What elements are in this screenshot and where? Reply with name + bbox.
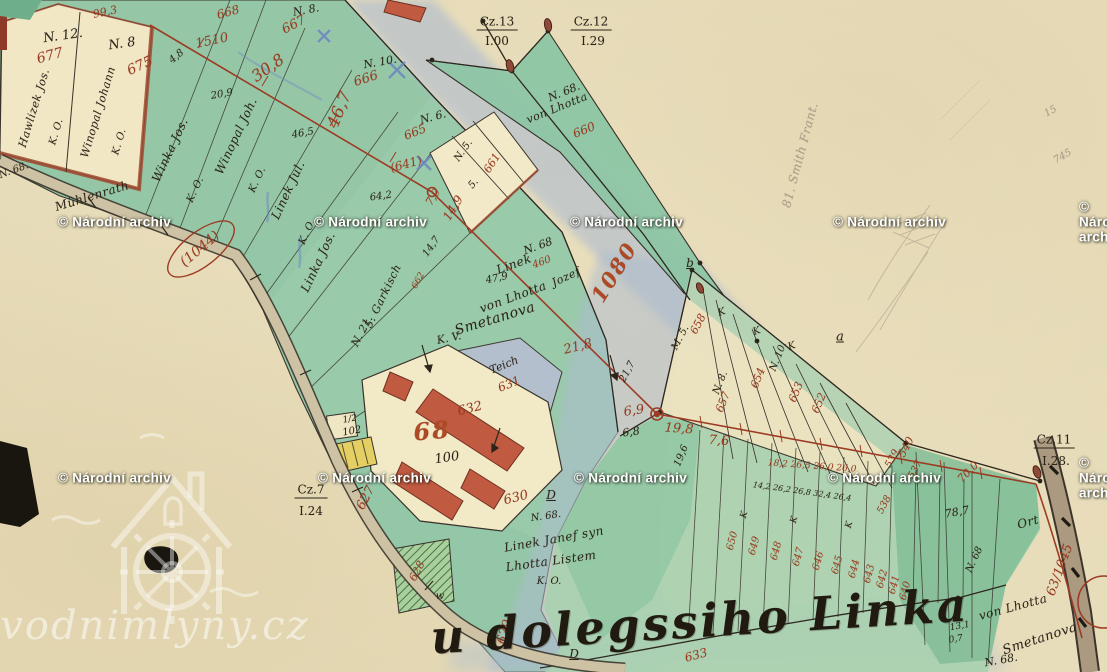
road-name: Mühlenrath (53, 179, 130, 213)
parcel-number-658: 658 (688, 312, 708, 336)
fixed-point-cz13-den: I.00 (485, 35, 509, 47)
parcel-number-627: 627 (354, 484, 377, 512)
road-plot-number: N. 68. (0, 161, 30, 181)
owner-name: Linek Jul. (269, 159, 306, 221)
road-parcel-number-1044: (1044) (178, 229, 223, 270)
parcel-number-648: 648 (770, 540, 785, 561)
plot-number: N. 8 (108, 36, 137, 53)
owner-note: K. O. (111, 128, 128, 157)
archive-watermark: © Národní archiv (828, 471, 941, 486)
pencil-note: 745 (1052, 148, 1074, 166)
archive-watermark: © Národní archiv (314, 215, 427, 230)
owner-note: K. O. (186, 176, 207, 205)
parcel-number-654: 654 (749, 366, 767, 390)
parcel-number-641: (641) (389, 154, 423, 174)
measure: 6,9 (623, 403, 645, 419)
measure: 14,7 (422, 235, 443, 259)
parcel-number-662: 662 (411, 271, 427, 290)
parcel-number-649: 649 (748, 535, 763, 556)
archive-watermark: © Národní archiv (570, 215, 683, 230)
measure: 1510 (194, 31, 229, 51)
parcel-number-539: 539 (884, 448, 902, 470)
house-number-102: 102 (342, 425, 363, 438)
owner-name: Winopal Joh. (213, 96, 259, 176)
archive-watermark: © Národní archiv (1079, 200, 1107, 245)
archive-watermark: © Národní archiv (318, 471, 431, 486)
mark-d: D (546, 489, 556, 501)
archive-watermark: © Národní archiv (833, 215, 946, 230)
measure: 46,5 (291, 127, 315, 141)
parcel-number-644: 644 (848, 558, 863, 579)
mark-k: K (752, 326, 762, 338)
mark-k: K (740, 511, 750, 520)
measure: 7,6 (708, 434, 730, 448)
measure: 21,7 (618, 360, 637, 384)
owner-name: Winopal Johann (79, 65, 117, 159)
parcel-number-650: 650 (726, 530, 741, 551)
parcel-number-661: 661 (482, 151, 502, 175)
parcel-number-633: 633 (683, 646, 708, 664)
vodnimlyny-watermark: vodnimlyny.cz (0, 603, 309, 649)
fixed-point-cz7: Cz.7 (295, 484, 328, 499)
parcel-number-628: 628 (407, 559, 427, 583)
parcel-number-645: 645 (831, 554, 846, 575)
measure: 14,9 (441, 193, 465, 222)
parcel-number-653: 653 (787, 380, 805, 404)
plot-number: N. 21. (349, 314, 374, 349)
mark-k: K (790, 516, 800, 525)
parcel-number-666: 666 (352, 69, 380, 89)
plot-number: N. 68. (984, 652, 1019, 669)
mark-k: K (845, 521, 855, 530)
measure: 30,8 (249, 51, 287, 85)
parcel-number-1080: 1080 (587, 238, 640, 305)
fixed-point-cz7-den: I.24 (299, 505, 323, 517)
parcel-number-668: 668 (215, 3, 240, 21)
parcel-number-667: 667 (280, 13, 308, 36)
parcel-number-677: 677 (35, 46, 64, 66)
plot-number: 5. (467, 177, 481, 191)
measure: 0,7 (948, 634, 964, 645)
owner-name: Winka Jos. (150, 116, 190, 184)
fixed-point-cz12-den: I.29 (581, 35, 605, 47)
plot-number: N. 5. (453, 138, 475, 163)
pencil-note: 81. Smith Frant. (780, 101, 820, 209)
owner-note: K. O. (537, 577, 562, 587)
plot-number: N. 10. (363, 54, 398, 71)
point-letter-a: a (836, 331, 844, 344)
parcel-number-647: 647 (792, 546, 807, 567)
house-number-100: 100 (434, 450, 460, 466)
parcel-number-652: 652 (810, 391, 828, 415)
parcel-number-646: 646 (812, 550, 827, 571)
parcel-number-1045: 63/1045 (1045, 542, 1076, 597)
measure: 21,8 (562, 337, 593, 357)
mark-k: K (787, 341, 797, 353)
pond-label: Teich (488, 354, 520, 375)
archive-watermark: © Národní archiv (58, 471, 171, 486)
owner-name: Hawlizek Jos. (17, 67, 51, 148)
fixed-point-cz12: Cz.12 (571, 16, 612, 31)
measure: 20,9 (210, 88, 234, 102)
fixed-point-cz11: Cz.11 (1034, 434, 1075, 449)
plot-number: N. 68. (530, 510, 561, 524)
owner-name: Jozef (550, 266, 582, 289)
owner-note: K. O. (48, 118, 65, 147)
parcel-number-630: 630 (502, 489, 529, 508)
parcel-number-538: 538 (876, 494, 894, 516)
fixed-point-cz13: Cz.13 (477, 16, 518, 31)
place-note: Ort (1016, 513, 1040, 530)
measure: 46,7 (325, 89, 355, 130)
archive-watermark: © Národní archiv (58, 215, 171, 230)
owner-note: K. V. (436, 330, 462, 346)
parcel-number-660: 660 (571, 120, 597, 140)
measure: 19,8 (664, 422, 694, 437)
mark-k: K (717, 307, 727, 319)
measure: 78,7 (944, 504, 970, 519)
plot-number: N. 12. (43, 27, 84, 45)
owner-note: K. O. (248, 166, 269, 195)
measure: 7,9 (424, 187, 443, 208)
measure: 19,6 (673, 444, 691, 468)
parcel-number-632: 632 (456, 400, 483, 419)
map-canvas: N. 12.677N. 867599,3Hawlizek Jos.K. O.Wi… (0, 0, 1107, 672)
measure: 4,8 (168, 48, 187, 66)
archive-watermark: © Národní archiv (574, 471, 687, 486)
pencil-note: 15 (1043, 104, 1059, 119)
owner-name: von Lhotta (978, 592, 1049, 622)
parcel-number-631: 631 (496, 374, 522, 394)
parcel-number-675: 675 (125, 54, 155, 78)
map-labels-layer: N. 12.677N. 867599,3Hawlizek Jos.K. O.Wi… (0, 0, 1107, 672)
measure: 70,0 (955, 459, 980, 484)
measure: 64,2 (369, 190, 392, 203)
house-number-68: 68 (412, 417, 451, 444)
archive-watermark: © Národní archiv (1079, 456, 1107, 501)
mark-w: w (436, 592, 445, 602)
plot-number: N. 68 (965, 546, 986, 575)
fixed-point-cz11-den: I.28. (1042, 455, 1070, 467)
owner-name: Lhotta Listem (505, 549, 597, 574)
house-number: 1/2 (342, 414, 358, 425)
measure: 99,3 (92, 4, 118, 20)
measure: 460 (531, 255, 552, 271)
plot-number: N. 10. (769, 341, 790, 373)
measure: 47,9 (485, 272, 509, 286)
point-letter-b: b (686, 257, 694, 269)
measure: 6,8 (622, 425, 641, 438)
parcel-number-665: 665 (402, 122, 428, 142)
